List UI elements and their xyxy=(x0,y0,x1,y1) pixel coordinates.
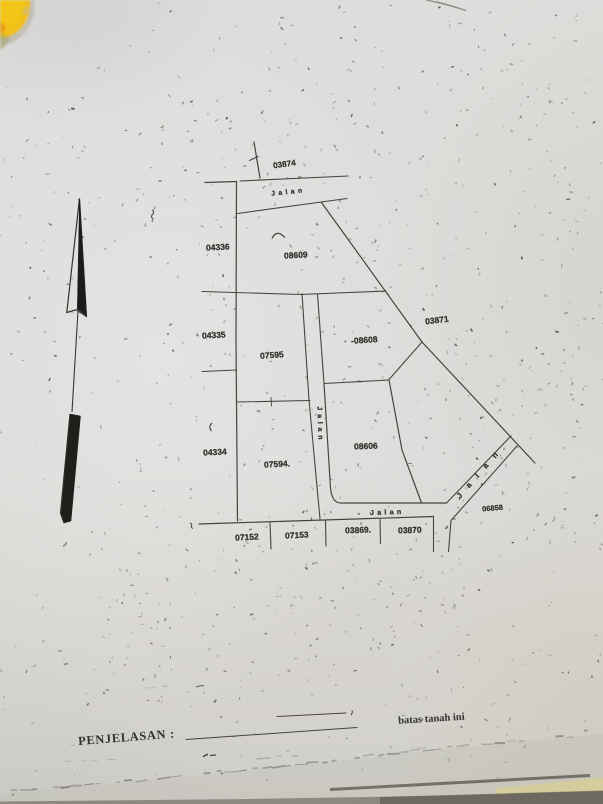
svg-text:Jalan: Jalan xyxy=(315,406,323,443)
svg-text:08606: 08606 xyxy=(354,441,378,452)
svg-text:04336: 04336 xyxy=(206,241,230,252)
svg-text:03874: 03874 xyxy=(273,158,297,170)
svg-text:Jalan: Jalan xyxy=(455,443,506,500)
svg-text:Jalan: Jalan xyxy=(271,187,306,198)
svg-text:07152: 07152 xyxy=(235,531,259,542)
svg-text:-08608: -08608 xyxy=(351,334,378,346)
svg-text:03870: 03870 xyxy=(398,525,422,536)
svg-text:03871: 03871 xyxy=(424,314,449,327)
svg-text:Jalan: Jalan xyxy=(370,509,405,517)
svg-text:07594.: 07594. xyxy=(264,458,290,469)
svg-text:batas tanah ini: batas tanah ini xyxy=(398,712,465,727)
svg-text:08609: 08609 xyxy=(284,249,308,260)
svg-text:04334: 04334 xyxy=(203,446,227,457)
svg-text:03869.: 03869. xyxy=(345,525,371,536)
svg-text:07595: 07595 xyxy=(260,349,285,361)
svg-text:07153: 07153 xyxy=(285,529,309,540)
svg-text:04335: 04335 xyxy=(202,329,226,340)
svg-text:06858: 06858 xyxy=(482,503,504,514)
svg-text:PENJELASAN :: PENJELASAN : xyxy=(78,727,176,749)
